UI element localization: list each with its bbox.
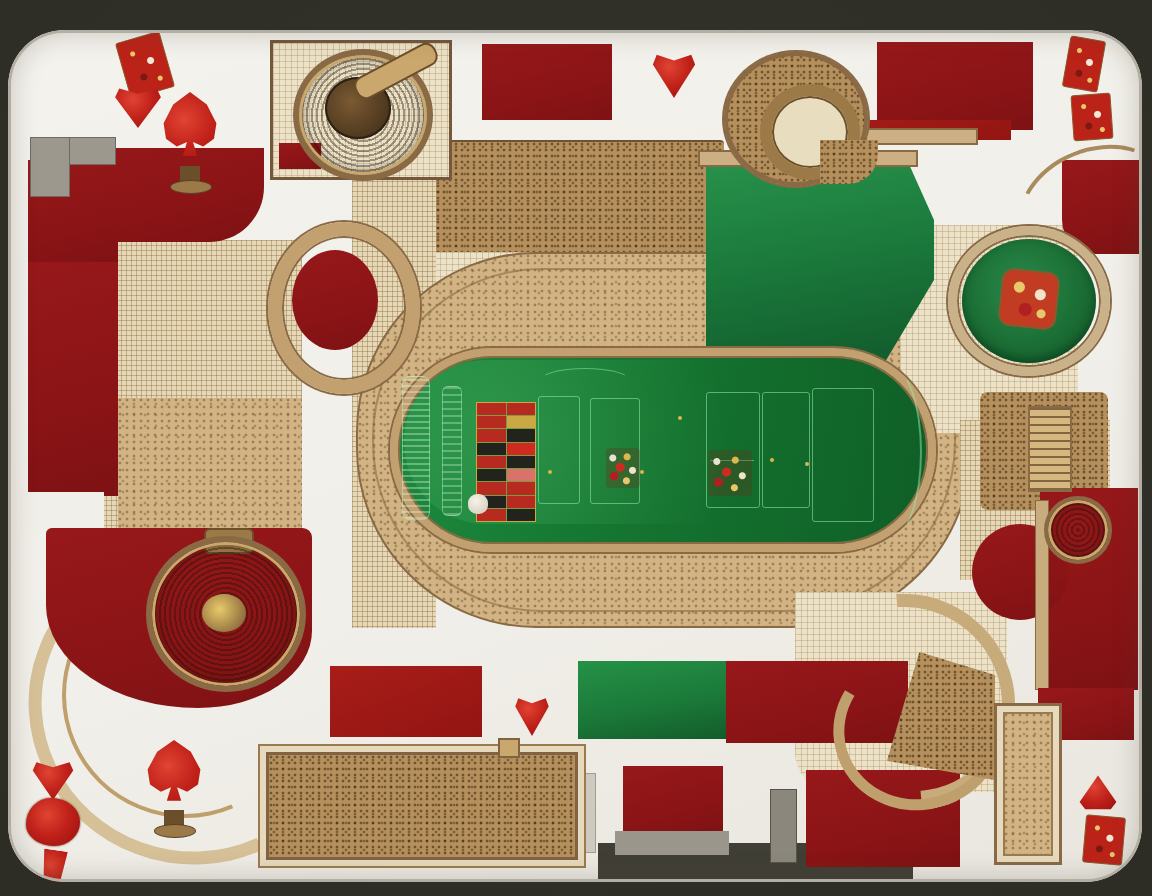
red-salon-topright bbox=[877, 42, 1033, 130]
chips-layer bbox=[390, 348, 936, 552]
chip-cluster bbox=[606, 448, 640, 488]
medallion-gold-blob bbox=[202, 594, 246, 632]
spade-base-icon bbox=[170, 180, 212, 194]
spiral-tail bbox=[820, 140, 878, 184]
gold-speck bbox=[770, 458, 774, 462]
card-index-bottom-right-icon bbox=[1082, 814, 1126, 865]
gray-door-pillar bbox=[770, 789, 797, 863]
white-notch-left bbox=[20, 492, 104, 532]
gray-base-strip bbox=[615, 831, 729, 855]
mosaic-hall bbox=[266, 752, 578, 860]
craps-table bbox=[390, 348, 936, 552]
spade-body-icon bbox=[144, 740, 204, 814]
red-column-left bbox=[28, 262, 118, 496]
gold-speck bbox=[548, 470, 552, 474]
spade-ornament-top-left-icon bbox=[158, 92, 222, 192]
spiral-stair bbox=[716, 48, 880, 194]
red-salon-bottom-3 bbox=[623, 766, 723, 834]
casino-floor-plan bbox=[0, 0, 1152, 896]
totem-heart-top-icon bbox=[30, 758, 76, 800]
spade-body-icon bbox=[160, 92, 220, 170]
hall-pillar-nub bbox=[498, 738, 520, 758]
green-salon-upper bbox=[706, 164, 934, 364]
red-salon-topcenter bbox=[482, 44, 612, 120]
card-clip bbox=[0, 0, 1152, 896]
totem-foot-icon bbox=[33, 848, 73, 896]
grand-medallion bbox=[146, 536, 306, 692]
green-salon-bottom bbox=[578, 661, 728, 739]
heart-totem-bottom-left-icon bbox=[26, 756, 80, 896]
ladder-block-right bbox=[1028, 406, 1072, 492]
gold-speck bbox=[678, 416, 682, 420]
circular-stair bbox=[268, 222, 398, 372]
circular-stair-core bbox=[292, 250, 378, 350]
roulette-centerpiece bbox=[997, 267, 1061, 331]
red-salon-bottom-1 bbox=[330, 666, 482, 737]
gray-stair-topleft-step bbox=[30, 137, 70, 197]
gold-speck bbox=[805, 462, 809, 466]
small-medallion-right bbox=[1044, 496, 1112, 564]
fan-staircase bbox=[795, 592, 1007, 792]
chip-cluster bbox=[708, 450, 752, 496]
roulette-table bbox=[948, 226, 1110, 376]
spade-base-icon bbox=[154, 824, 196, 838]
totem-heart-mid-icon bbox=[26, 798, 80, 846]
gold-speck bbox=[640, 470, 644, 474]
mosaic-square-br bbox=[994, 703, 1062, 865]
spade-ornament-bottom-left-icon bbox=[142, 740, 206, 836]
card-index-top-right-b-icon bbox=[1070, 93, 1113, 142]
chip-cluster bbox=[468, 494, 488, 514]
compass-room bbox=[270, 40, 452, 180]
floor-topleft-pebble bbox=[118, 398, 302, 532]
